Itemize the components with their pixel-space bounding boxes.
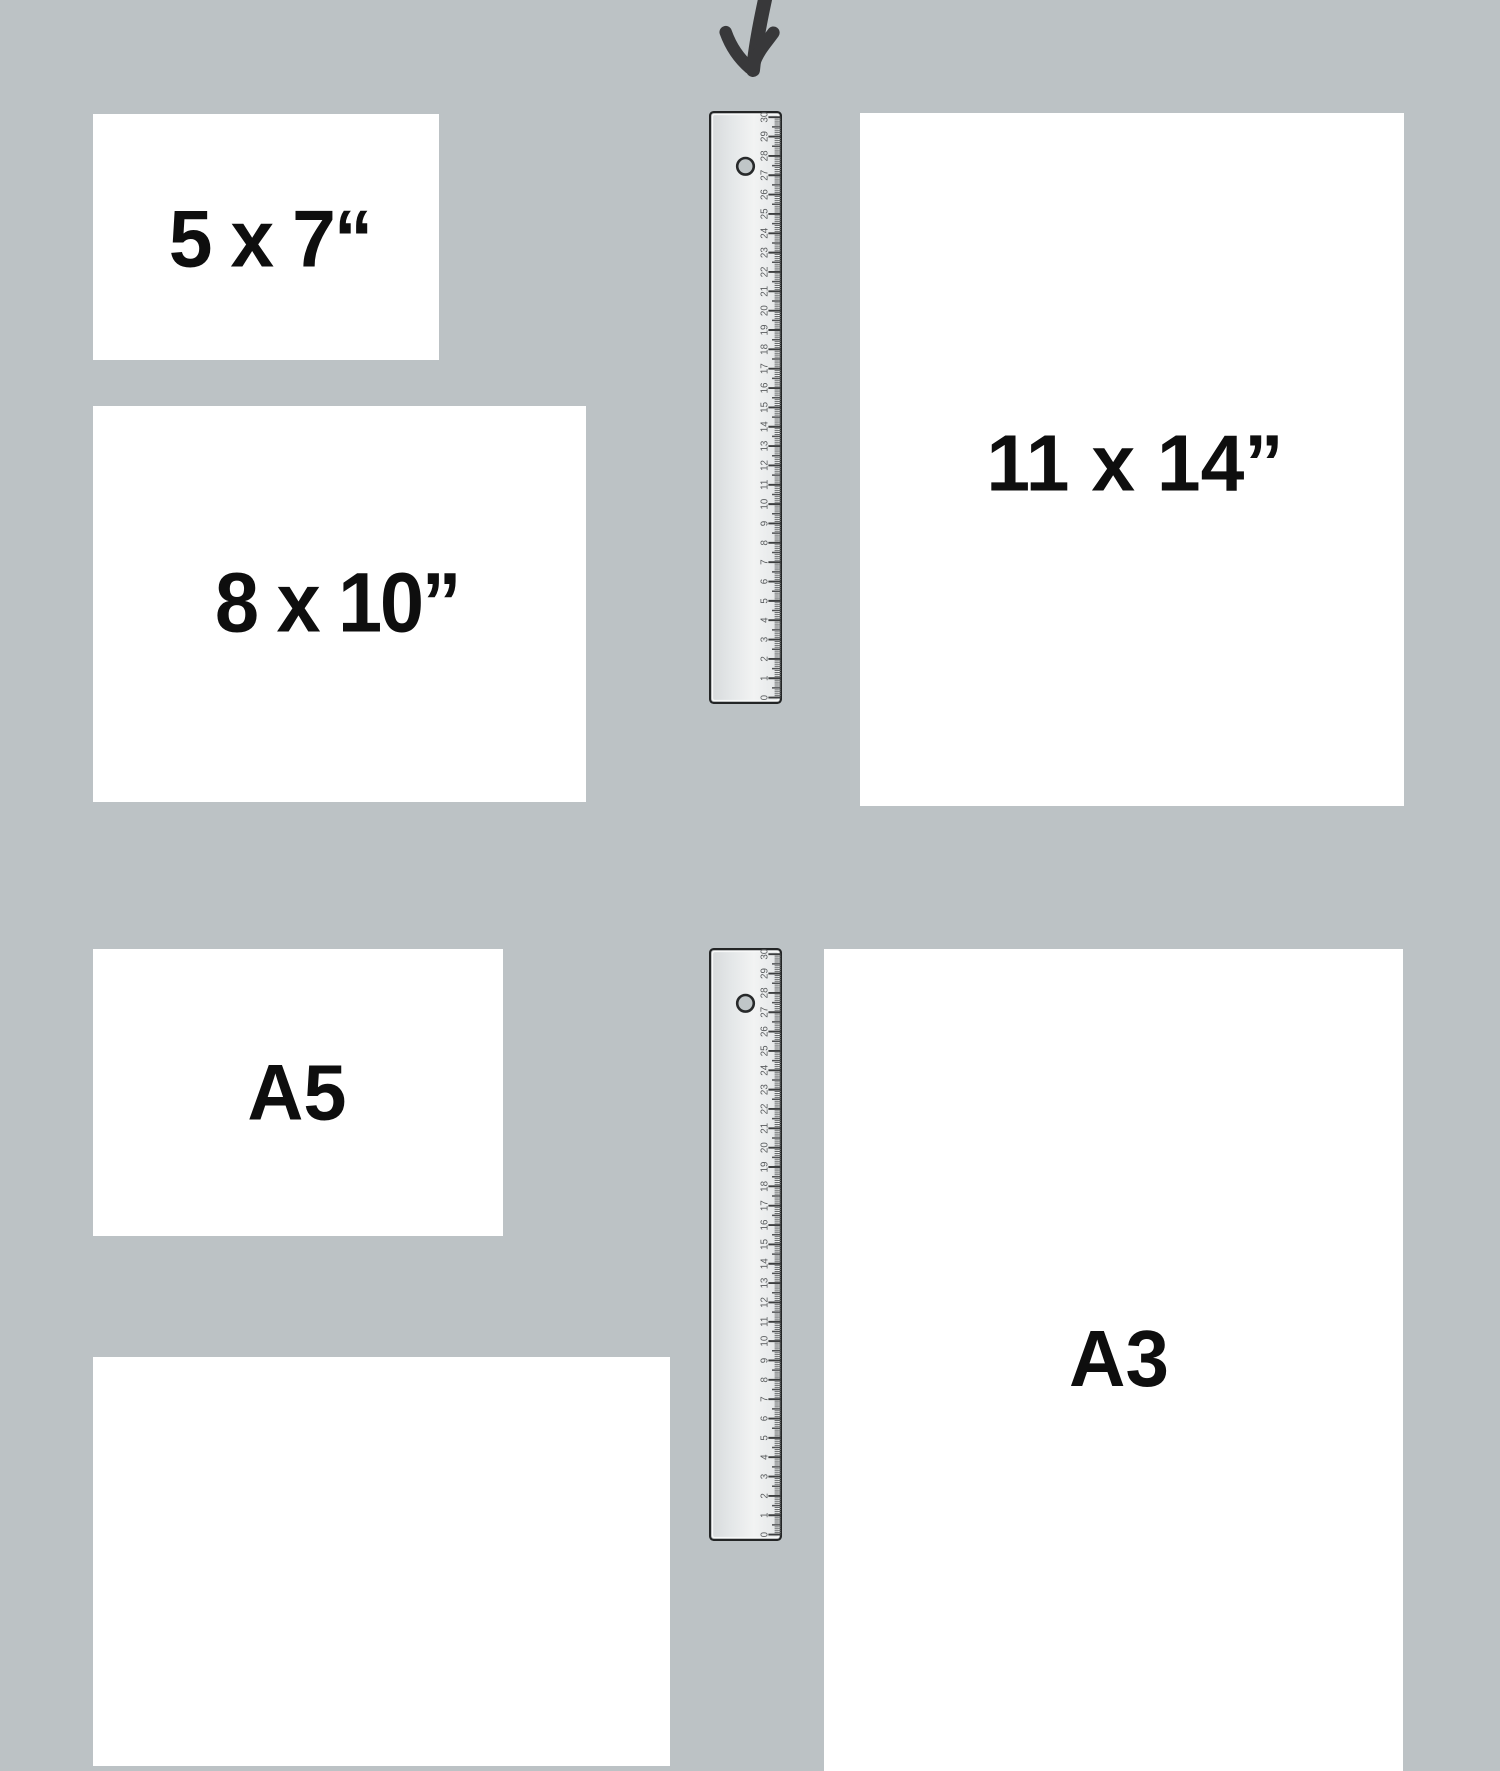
- svg-text:18: 18: [760, 1180, 771, 1191]
- svg-text:24: 24: [760, 227, 771, 238]
- svg-text:2: 2: [760, 1493, 771, 1498]
- svg-text:27: 27: [760, 170, 771, 181]
- svg-text:7: 7: [760, 1396, 771, 1401]
- svg-text:22: 22: [760, 1104, 771, 1115]
- svg-text:8: 8: [760, 540, 771, 546]
- svg-text:23: 23: [760, 1084, 771, 1095]
- svg-text:5: 5: [760, 598, 771, 604]
- svg-text:4: 4: [760, 617, 771, 623]
- svg-text:12: 12: [760, 460, 771, 471]
- svg-text:9: 9: [760, 1358, 771, 1363]
- svg-text:21: 21: [760, 1123, 771, 1134]
- svg-text:26: 26: [760, 1026, 771, 1037]
- svg-text:14: 14: [760, 1258, 771, 1269]
- svg-text:11: 11: [760, 480, 771, 490]
- svg-text:25: 25: [760, 208, 771, 219]
- svg-text:17: 17: [760, 363, 771, 374]
- svg-text:5: 5: [760, 1435, 771, 1441]
- svg-text:1: 1: [760, 1513, 771, 1518]
- svg-text:3: 3: [760, 1473, 771, 1479]
- svg-text:0: 0: [760, 1531, 771, 1537]
- svg-text:19: 19: [760, 325, 771, 336]
- svg-text:26: 26: [760, 189, 771, 200]
- svg-text:10: 10: [760, 1335, 771, 1346]
- svg-text:2: 2: [760, 656, 771, 661]
- svg-text:22: 22: [760, 267, 771, 278]
- svg-text:19: 19: [760, 1162, 771, 1173]
- svg-text:9: 9: [760, 521, 771, 526]
- svg-text:18: 18: [760, 343, 771, 354]
- svg-text:24: 24: [760, 1064, 771, 1075]
- svg-text:3: 3: [760, 636, 771, 642]
- svg-text:11: 11: [760, 1317, 771, 1327]
- svg-text:17: 17: [760, 1200, 771, 1211]
- svg-text:12: 12: [760, 1297, 771, 1308]
- svg-text:28: 28: [760, 987, 771, 998]
- svg-text:28: 28: [760, 150, 771, 161]
- svg-text:21: 21: [760, 286, 771, 297]
- svg-text:27: 27: [760, 1007, 771, 1018]
- svg-text:16: 16: [760, 1219, 771, 1230]
- svg-text:7: 7: [760, 559, 771, 564]
- svg-text:29: 29: [760, 968, 771, 979]
- svg-text:15: 15: [760, 401, 771, 412]
- svg-text:25: 25: [760, 1045, 771, 1056]
- svg-text:6: 6: [760, 578, 771, 584]
- svg-text:29: 29: [760, 131, 771, 142]
- svg-text:20: 20: [760, 305, 771, 316]
- svg-text:14: 14: [760, 421, 771, 432]
- svg-text:13: 13: [760, 1277, 771, 1288]
- svg-text:4: 4: [760, 1454, 771, 1460]
- svg-text:20: 20: [760, 1142, 771, 1153]
- svg-text:8: 8: [760, 1377, 771, 1383]
- svg-text:30: 30: [760, 948, 771, 959]
- svg-text:15: 15: [760, 1238, 771, 1249]
- svg-text:16: 16: [760, 382, 771, 393]
- svg-text:10: 10: [760, 498, 771, 509]
- svg-text:0: 0: [760, 694, 771, 700]
- svg-text:1: 1: [760, 676, 771, 681]
- svg-text:23: 23: [760, 247, 771, 258]
- svg-text:13: 13: [760, 440, 771, 451]
- svg-text:30: 30: [760, 111, 771, 122]
- svg-text:6: 6: [760, 1415, 771, 1421]
